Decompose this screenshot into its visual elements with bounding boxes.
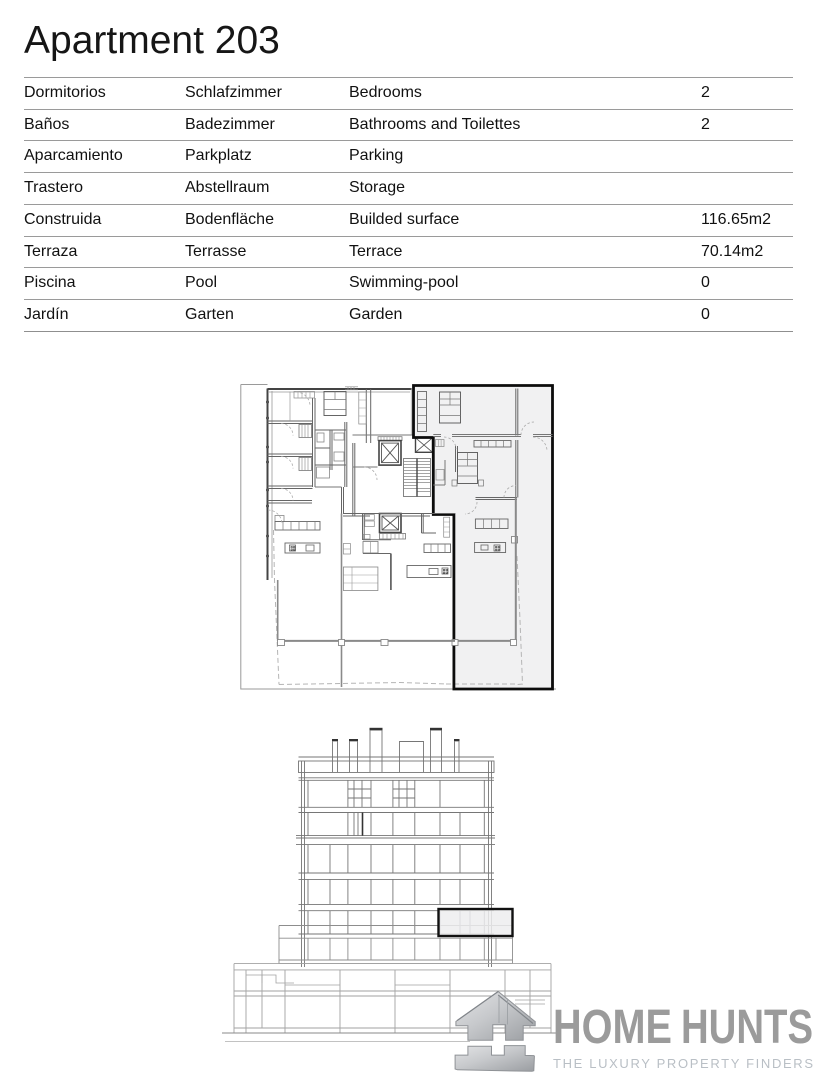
svg-text:HOME: HOME [553, 1001, 672, 1054]
svg-text:THE LUXURY PROPERTY FINDERS: THE LUXURY PROPERTY FINDERS [553, 1056, 813, 1071]
svg-text:HUNTS: HUNTS [681, 1001, 813, 1054]
